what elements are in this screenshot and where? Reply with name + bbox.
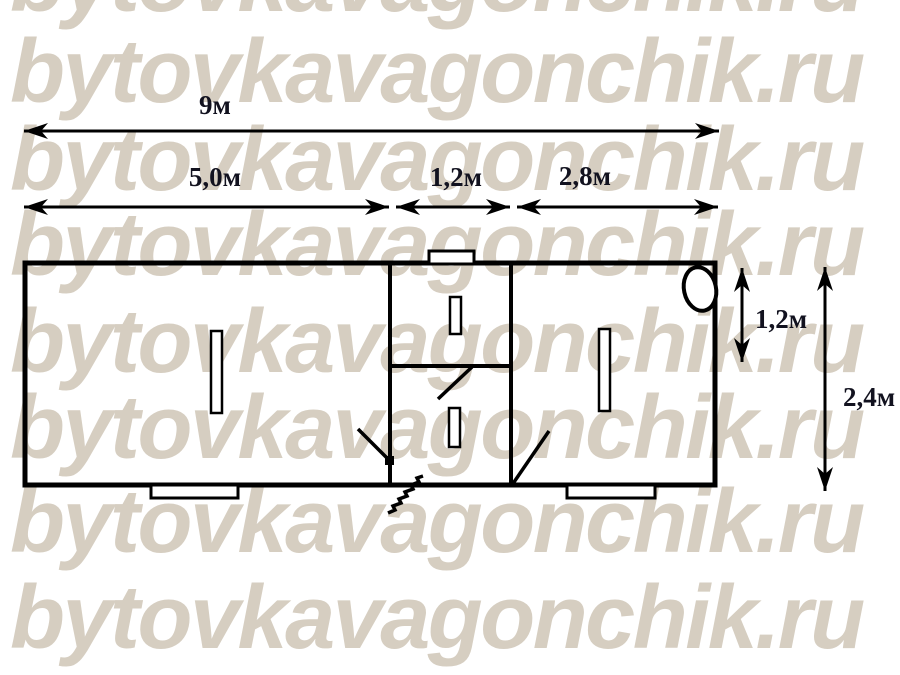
floor-plan-page: bytovkavagonchik.ru bytovkavagonchik.ru … [0,0,900,675]
dim-left-room: 5,0м [24,162,389,215]
dim-label-total-length: 9м [199,90,231,120]
dim-label-hall-depth: 1,2м [755,304,807,334]
outer-wall [25,263,715,485]
dim-right-room: 2,8м [517,161,718,215]
dim-label-total-width: 2,4м [843,382,895,412]
dim-total-length: 9м [24,90,719,139]
entry-step-left [151,485,238,498]
dim-hall: 1,2м [396,162,510,215]
dim-hall-depth: 1,2м [734,268,807,362]
dim-total-width: 2,4м [817,267,895,491]
dim-label-right-room: 2,8м [559,161,611,191]
window-hall-top [450,297,461,334]
window-right-room [599,329,610,411]
dim-label-left-room: 5,0м [189,162,241,192]
entry-step-right [567,485,655,498]
window-left-room [211,331,222,413]
door-leaf-hall [438,367,472,399]
entrance-steps-hatch [388,476,423,513]
door-leaf-right-room [512,431,549,485]
door-hinge [385,456,394,465]
dim-label-hall: 1,2м [430,162,482,192]
floor-plan-drawing: 9м 5,0м 1,2м 2,8м [0,0,900,675]
roof-vent [429,251,474,264]
window-hall-bottom [449,408,460,447]
